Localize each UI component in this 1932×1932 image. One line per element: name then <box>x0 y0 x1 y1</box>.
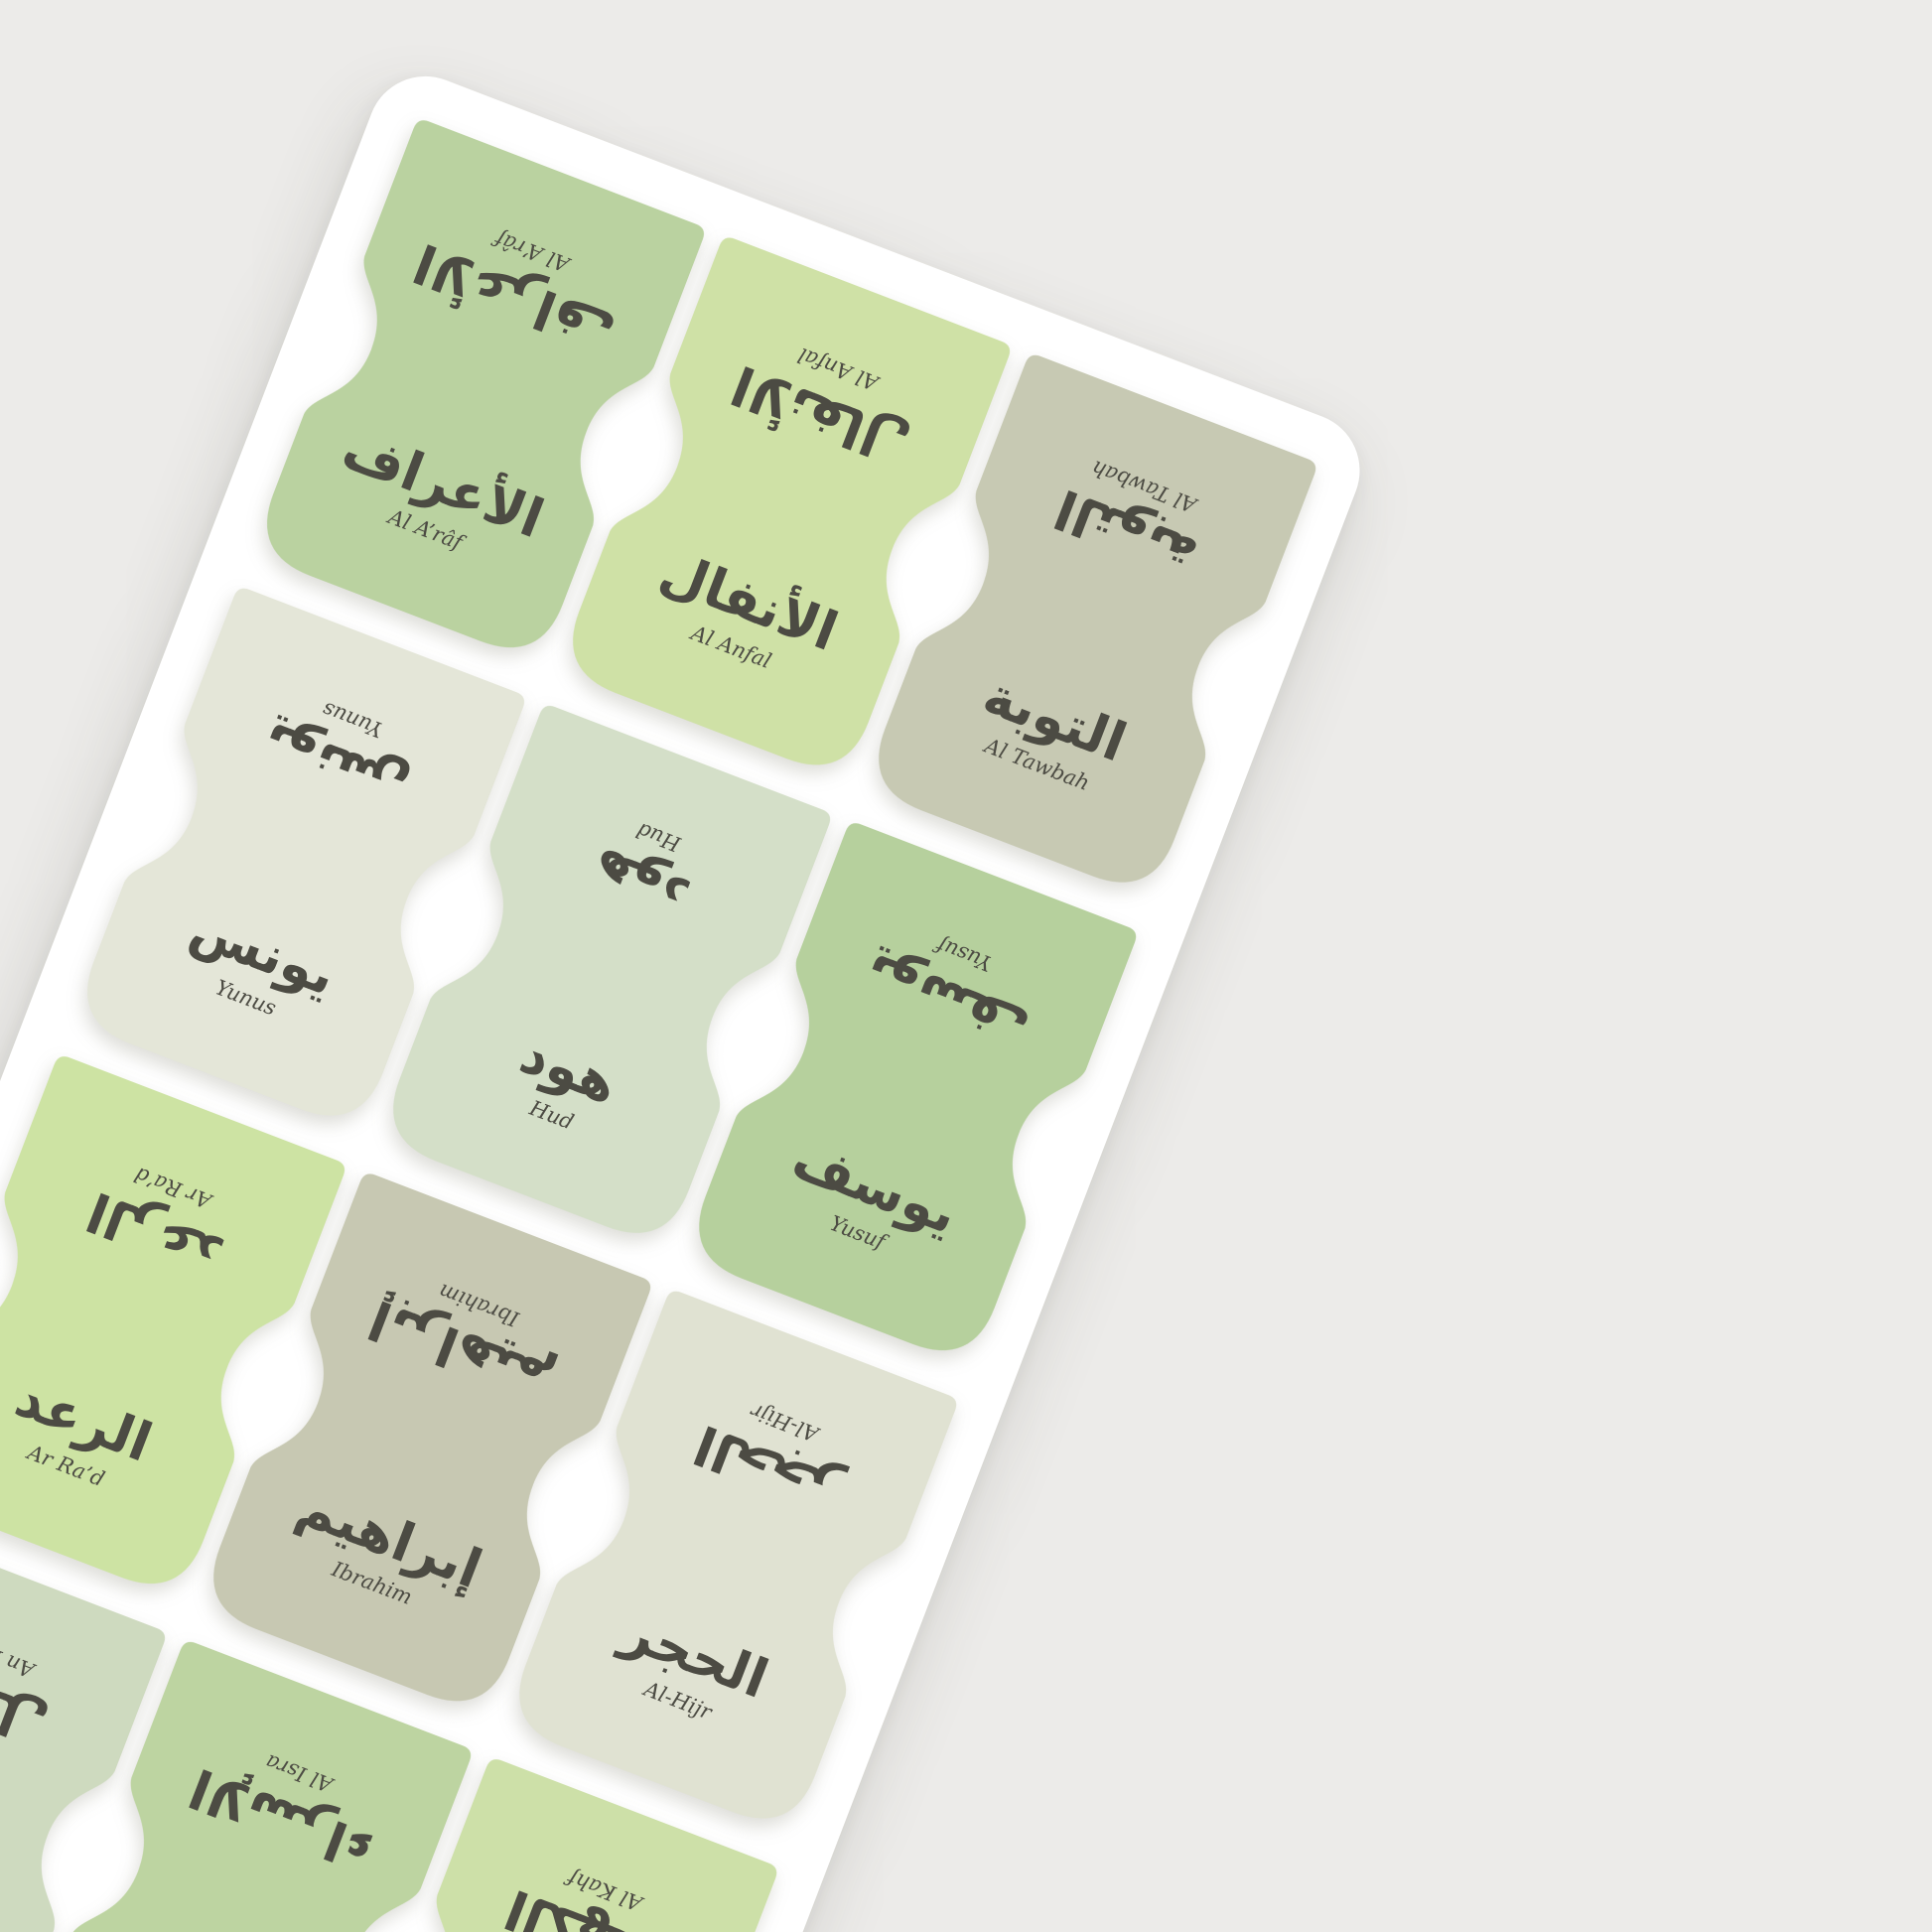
surah-name-arabic: الحجر <box>616 1602 775 1709</box>
sticker-sheet: الأعراف Al A’râf الأعراف Al A’râf الأنفا… <box>0 60 1376 1932</box>
surah-name-latin: Hud <box>526 1097 577 1135</box>
mockup-stage: الأعراف Al A’râf الأعراف Al A’râf الأنفا… <box>0 0 1932 1932</box>
surah-name-arabic: الحجر <box>687 1415 847 1521</box>
surah-name-arabic: هود <box>513 1026 625 1113</box>
surah-name-arabic: يونس <box>255 712 415 818</box>
surah-name-arabic: هود <box>585 839 697 926</box>
surah-name-arabic: يونس <box>184 899 344 1006</box>
tile-grid: الأعراف Al A’râf الأعراف Al A’râf الأنفا… <box>0 60 1376 1932</box>
surah-name-latin: An Nahl <box>0 1629 38 1682</box>
